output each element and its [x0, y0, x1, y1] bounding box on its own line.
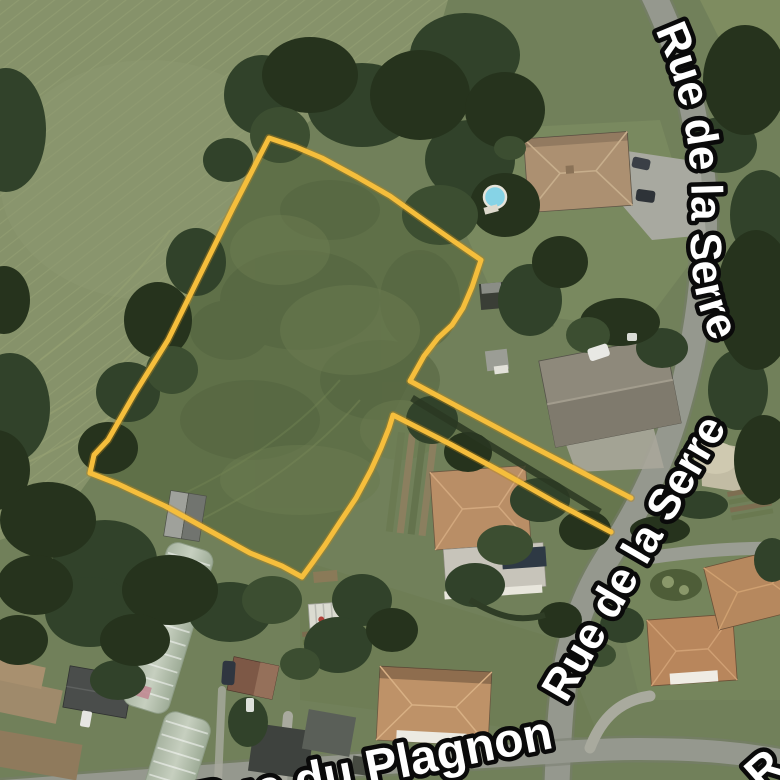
- round-pool: [484, 186, 506, 208]
- hedge-garden-rings: [650, 569, 702, 601]
- satellite-map[interactable]: Rue de la Serre Rue de la Serre Rue du P…: [0, 0, 780, 780]
- map-canvas: Rue de la Serre Rue de la Serre Rue du P…: [0, 0, 780, 780]
- lane-bottom-2: [218, 690, 222, 780]
- house-top-right: [524, 131, 633, 212]
